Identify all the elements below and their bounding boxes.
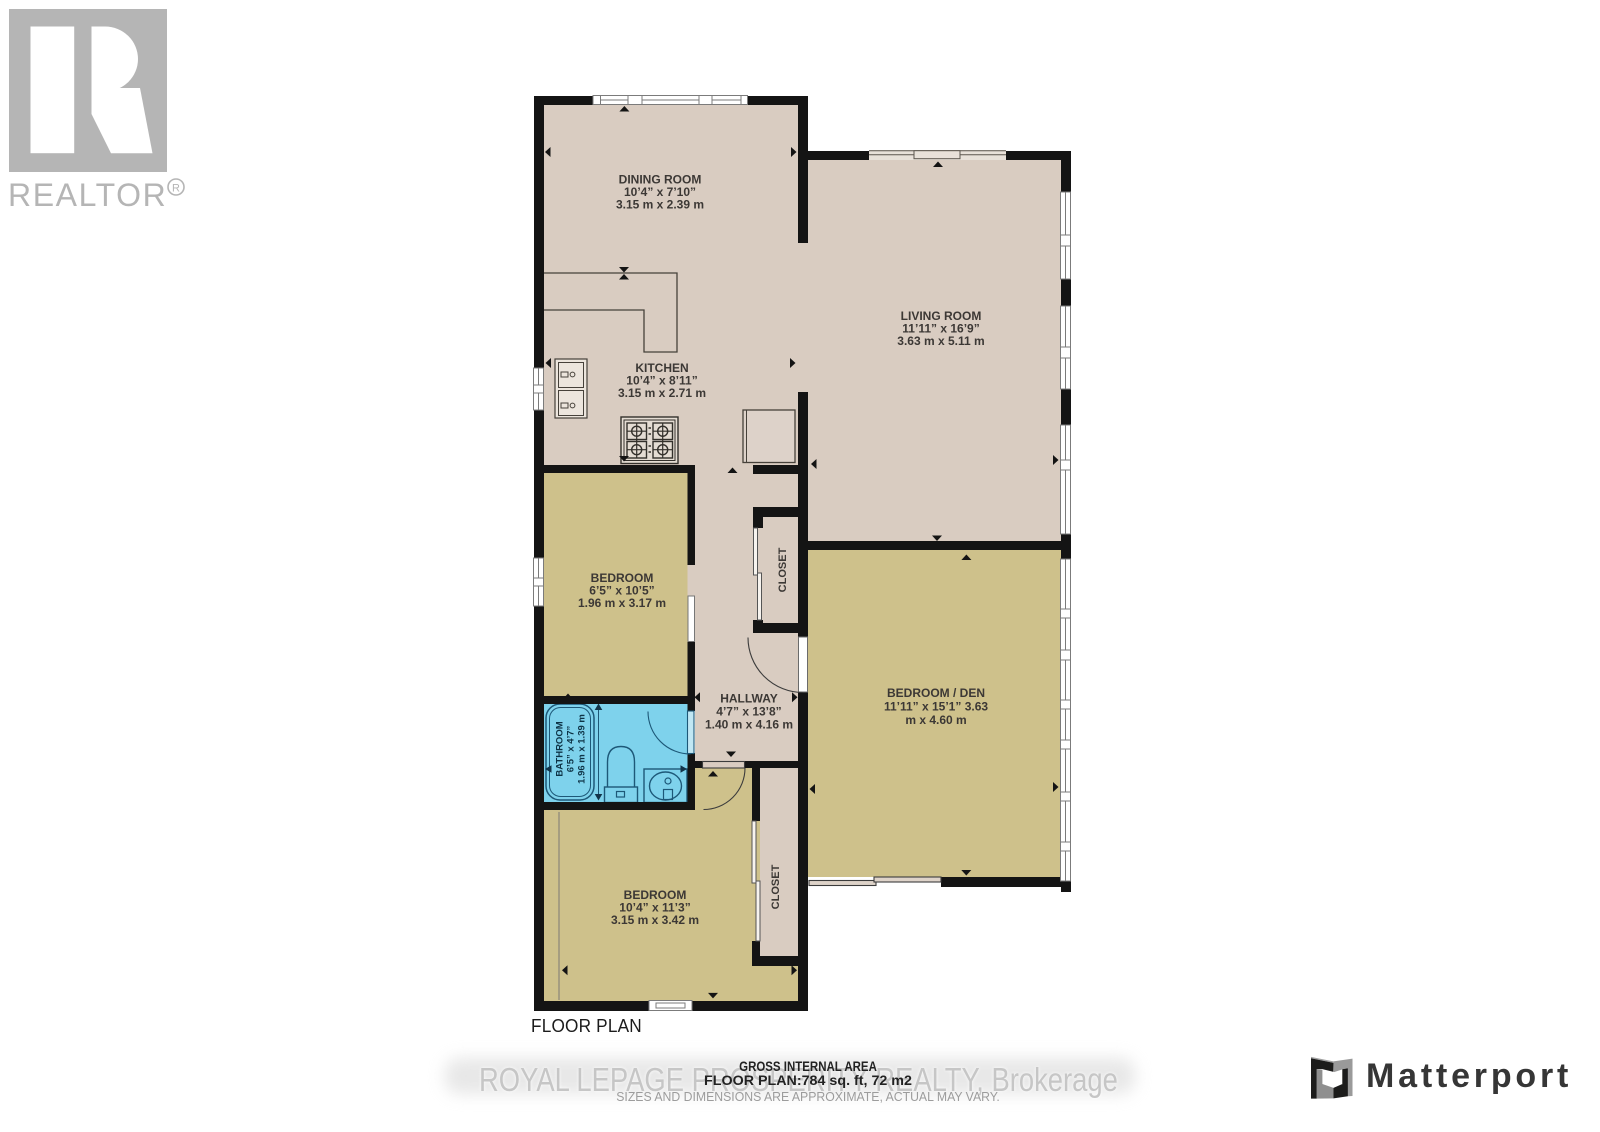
svg-text:BATHROOM: BATHROOM (555, 721, 566, 776)
svg-text:3.63 m x 5.11 m: 3.63 m x 5.11 m (897, 334, 984, 348)
svg-text:CLOSET: CLOSET (770, 864, 782, 909)
svg-text:BEDROOM / DEN: BEDROOM / DEN (887, 686, 985, 700)
svg-text:1.40 m x 4.16 m: 1.40 m x 4.16 m (705, 718, 793, 732)
svg-text:3.15 m x 2.71 m: 3.15 m x 2.71 m (618, 386, 706, 400)
svg-text:CLOSET: CLOSET (777, 547, 789, 592)
svg-text:4’7” x 13’8”: 4’7” x 13’8” (716, 705, 781, 719)
svg-text:m x 4.60 m: m x 4.60 m (905, 713, 966, 727)
svg-text:6’5” x 4’7”: 6’5” x 4’7” (566, 726, 577, 773)
svg-text:3.15 m x 2.39 m: 3.15 m x 2.39 m (616, 197, 704, 211)
svg-text:1.96 m x 1.39 m: 1.96 m x 1.39 m (577, 714, 588, 784)
svg-text:3.15 m x 3.42 m: 3.15 m x 3.42 m (611, 913, 699, 927)
svg-text:1.96 m x 3.17 m: 1.96 m x 3.17 m (578, 596, 666, 610)
svg-text:HALLWAY: HALLWAY (720, 692, 778, 706)
svg-text:11’11” x 15’1” 3.63: 11’11” x 15’1” 3.63 (884, 700, 988, 714)
